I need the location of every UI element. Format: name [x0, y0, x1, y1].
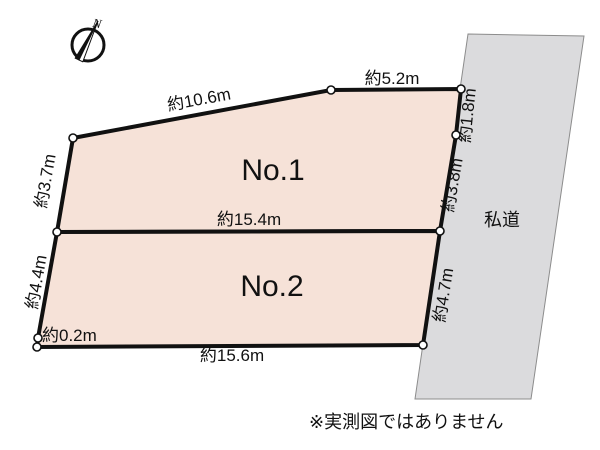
vertex-marker: [34, 334, 42, 342]
vertex-marker: [33, 343, 41, 351]
vertex-marker: [436, 227, 444, 235]
measure-divider: 約15.4m: [217, 210, 281, 229]
vertex-marker: [457, 85, 465, 93]
measure-no1-top-right: 約5.2m: [365, 69, 420, 88]
diagram-canvas: 私道 No.1 No.2 約10.6m 約5.2m 約3.7m 約1.8m 約3…: [0, 0, 600, 450]
lot-no2: No.2: [37, 231, 440, 347]
vertex-marker: [452, 131, 460, 139]
measure-no1-left: 約3.7m: [31, 152, 59, 209]
north-label: N: [90, 15, 103, 32]
vertex-marker: [327, 86, 335, 94]
lot-no1-label: No.1: [241, 154, 304, 187]
measure-no2-corner: 約0.2m: [42, 326, 97, 345]
vertex-marker: [419, 341, 427, 349]
measure-no2-bottom: 約15.6m: [200, 346, 264, 365]
lot-no2-label: No.2: [240, 270, 303, 303]
vertex-marker: [69, 134, 77, 142]
compass-icon: N: [72, 15, 104, 62]
lot-no2-shape: [37, 231, 440, 347]
vertex-marker: [53, 228, 61, 236]
lot-layout-diagram: 私道 No.1 No.2 約10.6m 約5.2m 約3.7m 約1.8m 約3…: [0, 0, 600, 450]
disclaimer-text: ※実測図ではありません: [309, 412, 504, 432]
private-road-label: 私道: [484, 210, 520, 230]
